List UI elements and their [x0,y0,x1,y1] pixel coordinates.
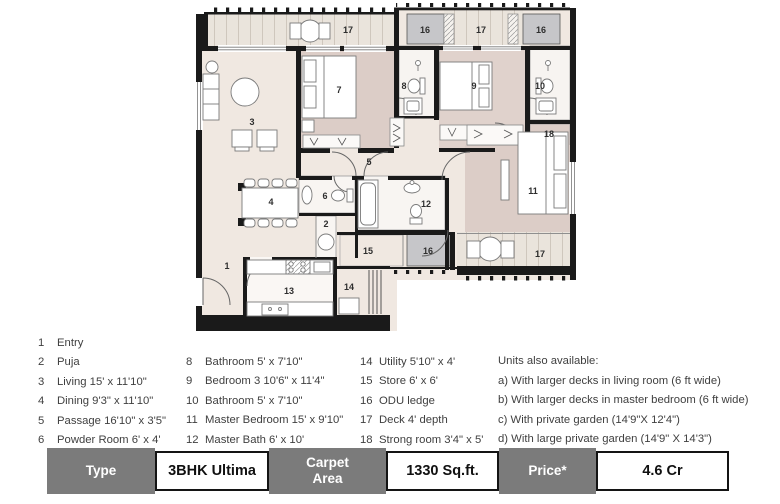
puja-circle [318,234,334,250]
legend-item-number: 16 [360,395,379,407]
legend-item-text: Deck 4' depth [379,414,448,426]
legend-row: 16ODU ledge [360,391,483,411]
legend-row: 1Entry [38,333,166,353]
legend-row: 4Dining 9'3" x 11'10" [38,392,166,412]
notes-item: d) With large private garden (14'9" X 14… [498,430,749,450]
legend-row: 15Store 6' x 6' [360,372,483,392]
room-label-deck-top-mid: 17 [476,25,486,35]
room-label-living: 3 [249,117,254,127]
legend-item-number: 8 [186,356,205,368]
type-value-label: 3BHK Ultima [168,463,256,479]
legend-item-number: 5 [38,415,57,427]
room-label-master-bath: 12 [421,199,431,209]
utility-box [339,298,359,314]
legend-row: 2Puja [38,353,166,373]
type-header-cell: Type [47,448,155,494]
wardrobe-master [467,125,523,145]
availability-notes: Units also available: a) With larger dec… [498,352,749,450]
room-label-bath2: 10 [535,81,545,91]
legend-item-text: Bathroom 5' x 7'10" [205,395,303,407]
room-label-powder: 6 [322,191,327,201]
legend-row: 18Strong room 3'4" x 5' [360,430,483,450]
shaft-bath1 [390,118,404,146]
legend-column-1: 1Entry 2Puja 3Living 15' x 11'10" 4Dinin… [38,333,166,450]
legend-row: 3Living 15' x 11'10" [38,372,166,392]
flyer-page: 17 16 17 16 3 7 8 9 10 18 5 11 6 12 2 4 … [0,0,780,504]
price-value-label: 4.6 Cr [642,463,682,479]
legend-item-text: Strong room 3'4" x 5' [379,434,483,446]
room-label-store: 15 [363,246,373,256]
stool [206,61,218,73]
legend-item-number: 3 [38,376,57,388]
legend-item-text: Powder Room 6' x 4' [57,434,161,446]
sofa [203,74,219,120]
room-label-odu-bottom: 16 [423,246,433,256]
room-label-deck-top-left: 17 [343,25,353,35]
legend-item-text: Master Bath 6' x 10' [205,434,304,446]
legend-item-number: 11 [186,414,205,426]
legend-item-number: 6 [38,434,57,446]
deck-bottom-furniture [467,237,514,261]
legend-item-number: 9 [186,375,205,387]
legend-row: 9Bedroom 3 10'6" x 11'4" [186,372,343,392]
legend-item-number: 15 [360,375,379,387]
notes-item: b) With larger decks in master bedroom (… [498,391,749,411]
legend-item-text: Entry [57,337,83,349]
notes-item: a) With larger decks in living room (6 f… [498,372,749,392]
legend-row: 10Bathroom 5' x 7'10" [186,391,343,411]
floor-plan-canvas: 17 16 17 16 3 7 8 9 10 18 5 11 6 12 2 4 … [190,2,590,338]
room-label-entry: 1 [224,261,229,271]
legend-item-text: Bathroom 5' x 7'10" [205,356,303,368]
legend-item-text: Bedroom 3 10'6" x 11'4" [205,375,325,387]
room-label-bed2: 7 [336,85,341,95]
deck-top-furniture [290,20,330,42]
legend-item-number: 12 [186,434,205,446]
room-label-passage: 5 [366,157,371,167]
notes-item: c) With private garden (14'9"X 12'4") [498,411,749,431]
carpet-area-header-label: Carpet Area [293,455,363,486]
legend-item-number: 4 [38,395,57,407]
room-label-strong: 18 [544,129,554,139]
legend-row: 12Master Bath 6' x 10' [186,430,343,450]
legend-item-text: Living 15' x 11'10" [57,376,147,388]
legend-item-number: 2 [38,356,57,368]
legend-row: 11Master Bedroom 15' x 9'10" [186,411,343,431]
room-label-odu-top-right: 16 [536,25,546,35]
legend-item-number: 1 [38,337,57,349]
carpet-area-value-label: 1330 Sq.ft. [406,463,479,479]
room-label-kitchen: 13 [284,286,294,296]
legend-column-2: 8Bathroom 5' x 7'10" 9Bedroom 3 10'6" x … [186,352,343,450]
legend-column-3: 14Utility 5'10" x 4' 15Store 6' x 6' 16O… [360,352,483,450]
room-label-deck-right: 17 [535,249,545,259]
legend-row: 14Utility 5'10" x 4' [360,352,483,372]
floor-plan: 17 16 17 16 3 7 8 9 10 18 5 11 6 12 2 4 … [190,2,590,338]
legend-item-text: Puja [57,356,80,368]
notes-title: Units also available: [498,352,749,372]
legend-item-number: 14 [360,356,379,368]
room-label-odu-top-left: 16 [420,25,430,35]
legend-row: 5Passage 16'10" x 3'5" [38,411,166,431]
room-label-bath1: 8 [401,81,406,91]
room-label-dining: 4 [268,197,273,207]
legend-item-text: Passage 16'10" x 3'5" [57,415,166,427]
type-header-label: Type [86,463,117,479]
room-label-master-bed: 11 [528,186,538,196]
price-header-cell: Price* [499,448,596,494]
carpet-area-value-cell: 1330 Sq.ft. [386,451,499,491]
type-value-cell: 3BHK Ultima [155,451,269,491]
coffee-table [231,78,259,106]
legend-row: 17Deck 4' depth [360,411,483,431]
legend-item-text: Store 6' x 6' [379,375,438,387]
legend-item-text: Master Bedroom 15' x 9'10" [205,414,343,426]
summary-table: Type 3BHK Ultima Carpet Area 1330 Sq.ft.… [47,448,729,494]
price-value-cell: 4.6 Cr [596,451,729,491]
legend-item-text: Dining 9'3" x 11'10" [57,395,153,407]
room-label-bed3: 9 [471,81,476,91]
bed-room9 [440,62,492,110]
legend-item-number: 10 [186,395,205,407]
legend-item-number: 18 [360,434,379,446]
price-header-label: Price* [528,463,566,479]
legend-item-number: 17 [360,414,379,426]
legend-row: 8Bathroom 5' x 7'10" [186,352,343,372]
carpet-area-header-cell: Carpet Area [269,448,386,494]
room-label-utility: 14 [344,282,354,292]
legend-item-text: ODU ledge [379,395,435,407]
room-label-puja: 2 [323,219,328,229]
wardrobe-bed2 [303,135,360,148]
legend-item-text: Utility 5'10" x 4' [379,356,455,368]
